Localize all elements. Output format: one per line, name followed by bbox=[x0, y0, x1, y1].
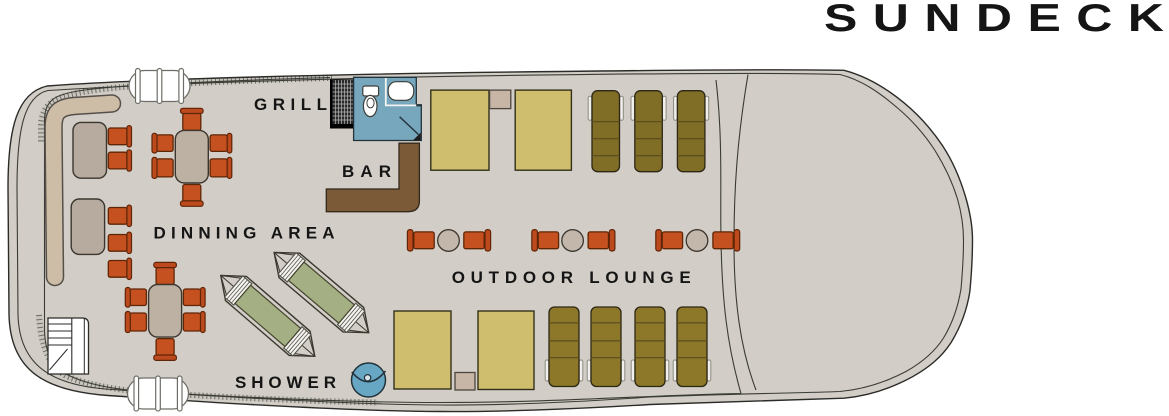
svg-text:GRILL: GRILL bbox=[254, 95, 327, 114]
svg-text:BAR: BAR bbox=[342, 162, 391, 181]
svg-text:SUNDECK: SUNDECK bbox=[824, 0, 1164, 40]
svg-text:DINNING AREA: DINNING AREA bbox=[154, 224, 335, 243]
